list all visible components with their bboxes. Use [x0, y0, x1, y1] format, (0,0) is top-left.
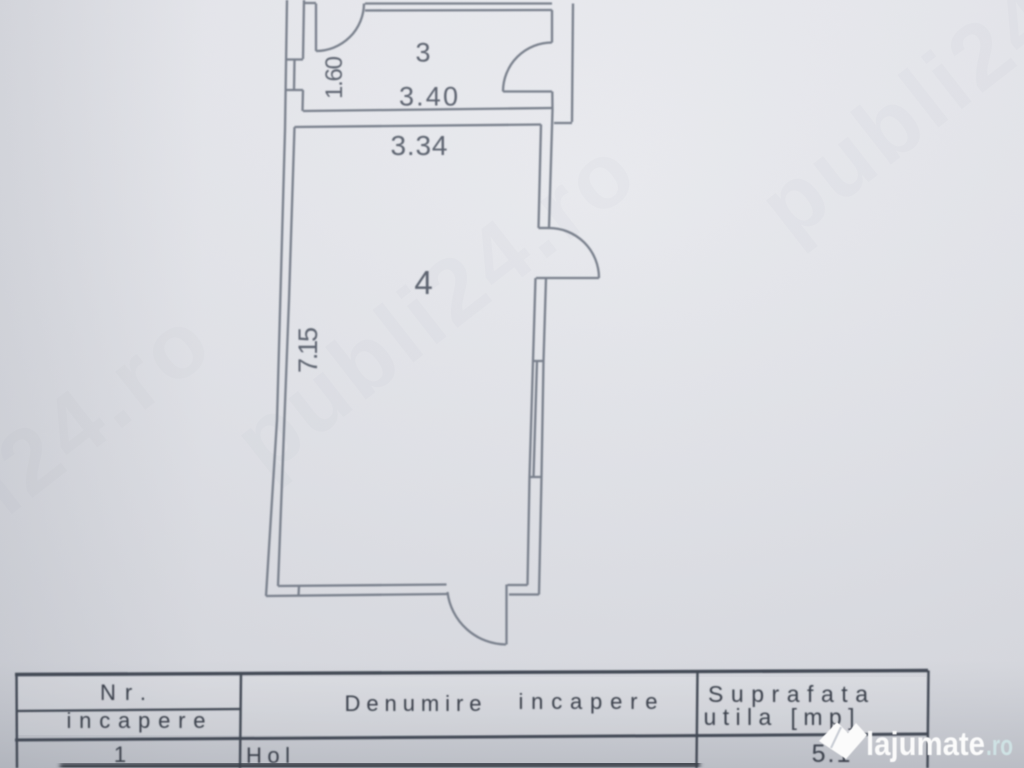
- svg-text:3.34: 3.34: [391, 130, 448, 161]
- svg-text:3: 3: [415, 38, 430, 68]
- svg-text:7.15: 7.15: [293, 327, 323, 373]
- svg-text:.ro: .ro: [986, 730, 1013, 762]
- svg-text:3.40: 3.40: [399, 82, 458, 112]
- svg-text:Suprafata: Suprafata: [708, 681, 868, 707]
- svg-text:lajumate: lajumate: [866, 725, 985, 762]
- svg-text:utila [mp]: utila [mp]: [704, 704, 855, 730]
- svg-text:4: 4: [414, 264, 432, 301]
- svg-text:1: 1: [114, 742, 126, 767]
- svg-text:1.60: 1.60: [321, 56, 348, 99]
